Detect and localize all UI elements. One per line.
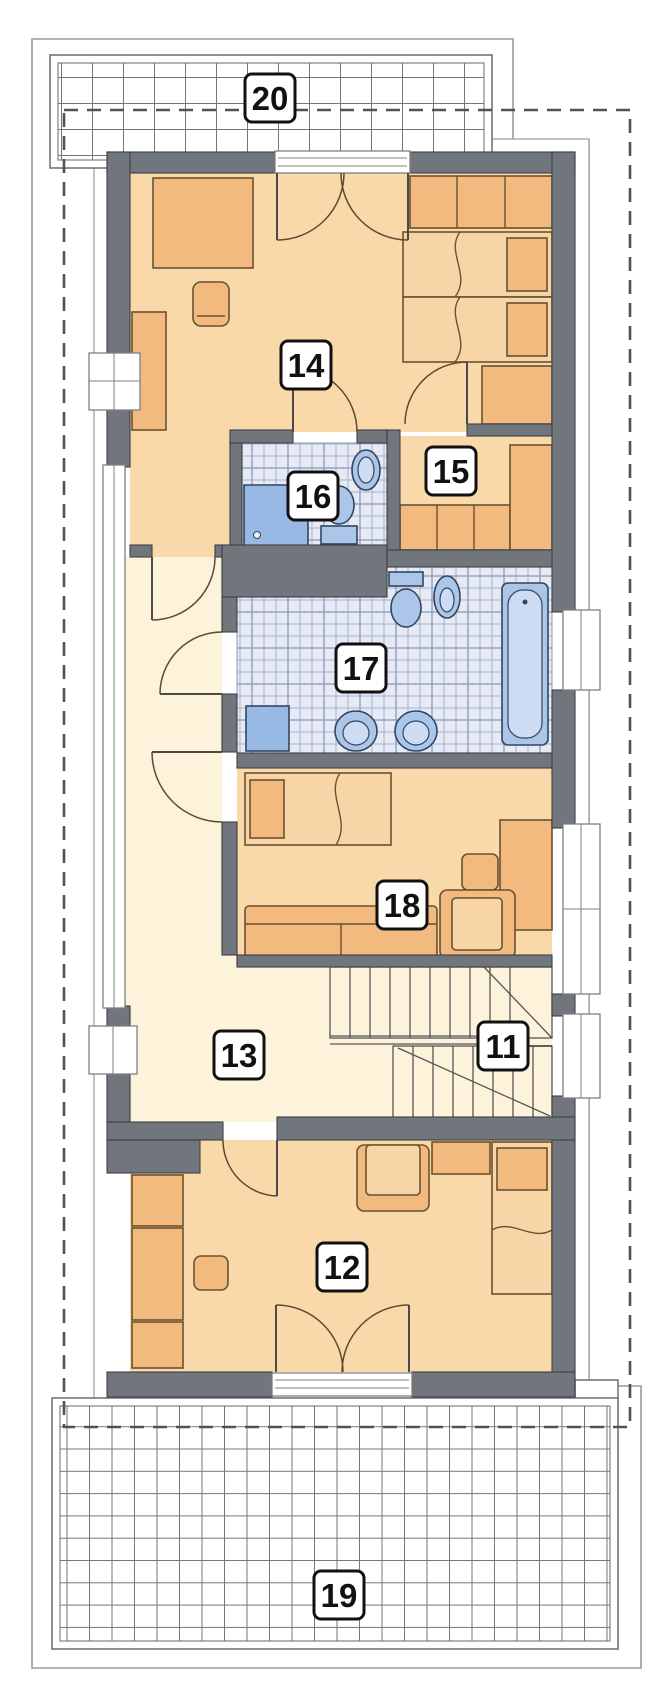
room-label-11: 11 xyxy=(486,1028,521,1065)
wall-hall-top-a xyxy=(130,545,152,557)
room-label-18: 18 xyxy=(384,887,421,924)
wall-spine-left-block xyxy=(222,545,387,597)
wall-hall-side-1 xyxy=(222,597,237,632)
wall-top-left xyxy=(107,152,275,173)
wall-bath16-room15 xyxy=(387,430,400,550)
wall-right-3 xyxy=(552,994,575,1016)
sink-16-basin xyxy=(358,457,374,483)
room-label-15: 15 xyxy=(433,453,470,490)
washing-machine-icon xyxy=(246,706,289,751)
wall-room12-top-b xyxy=(277,1117,575,1140)
desk-room12-icon xyxy=(132,1228,183,1320)
armchair-room12-seat xyxy=(366,1145,420,1195)
cabinet-room12-right-icon xyxy=(432,1142,490,1174)
daybed-icon xyxy=(153,178,253,268)
wall-right-1 xyxy=(552,152,575,612)
room-label-20: 20 xyxy=(252,80,289,117)
sink-17-right-basin xyxy=(403,721,429,745)
wall-hall-side-2 xyxy=(222,694,237,752)
chair-room12-icon xyxy=(194,1256,228,1290)
wall-left-2 xyxy=(107,410,130,467)
wall-right-2 xyxy=(552,690,575,828)
room-label-17: 17 xyxy=(343,650,380,687)
armchair-room18-seat xyxy=(452,898,502,950)
floor-plan-drawing: 20 14 15 16 17 18 13 11 12 19 xyxy=(0,0,660,1690)
french-door-top-threshold xyxy=(275,151,410,173)
bed-room12-pillow xyxy=(497,1148,547,1190)
bidet-basin xyxy=(440,588,454,612)
wall-hall-side-3 xyxy=(222,822,237,955)
french-door-bottom-threshold xyxy=(272,1373,412,1396)
toilet-17-tank xyxy=(389,572,423,586)
wardrobe-room15-bottom-icon xyxy=(400,505,510,550)
bench-room14-icon xyxy=(482,366,552,424)
bed-2-pillow xyxy=(507,303,547,356)
wall-bath16-left xyxy=(230,443,242,550)
room-label-14: 14 xyxy=(288,347,325,384)
toilet-16-tank xyxy=(321,526,357,544)
wall-stairwell-top xyxy=(237,955,552,967)
sink-17-left-basin xyxy=(343,721,369,745)
cabinet-room12-bottom-icon xyxy=(132,1322,183,1368)
wall-top-right xyxy=(410,152,575,173)
wall-hall-top-b xyxy=(215,545,222,557)
wall-right-4 xyxy=(552,1096,575,1397)
wall-left-1 xyxy=(107,152,130,357)
wall-spine-right xyxy=(387,550,552,567)
wall-bath16-top-b xyxy=(357,430,387,443)
wardrobe-room14-icon xyxy=(410,176,552,228)
wall-bath16-top-a xyxy=(230,430,293,443)
room-label-12: 12 xyxy=(324,1249,361,1286)
shower-drain xyxy=(254,532,261,539)
wardrobe-room15-right-icon xyxy=(510,445,552,550)
wall-room18-top xyxy=(237,753,552,768)
bed-room18-pillow xyxy=(250,780,284,838)
chair-room18-icon xyxy=(462,854,498,890)
wall-room12-top-a xyxy=(107,1122,223,1140)
floor-plan-page: 20 14 15 16 17 18 13 11 12 19 xyxy=(0,0,660,1690)
room-label-13: 13 xyxy=(221,1037,258,1074)
bathtub-inner xyxy=(508,590,542,738)
wall-bottom-left xyxy=(107,1372,272,1397)
bed-1-pillow xyxy=(507,238,547,291)
room-label-19: 19 xyxy=(321,1577,358,1614)
toilet-17-bowl-icon xyxy=(391,589,421,627)
wall-left-4 xyxy=(107,1072,130,1122)
cabinet-room12-top-icon xyxy=(132,1175,183,1226)
chair-room14-icon xyxy=(193,282,229,326)
wall-room12-chimney-block xyxy=(107,1140,200,1173)
room-label-16: 16 xyxy=(295,478,332,515)
wall-room15-top xyxy=(467,424,552,436)
wall-bottom-right xyxy=(412,1372,575,1397)
bathtub-drain xyxy=(523,600,528,605)
